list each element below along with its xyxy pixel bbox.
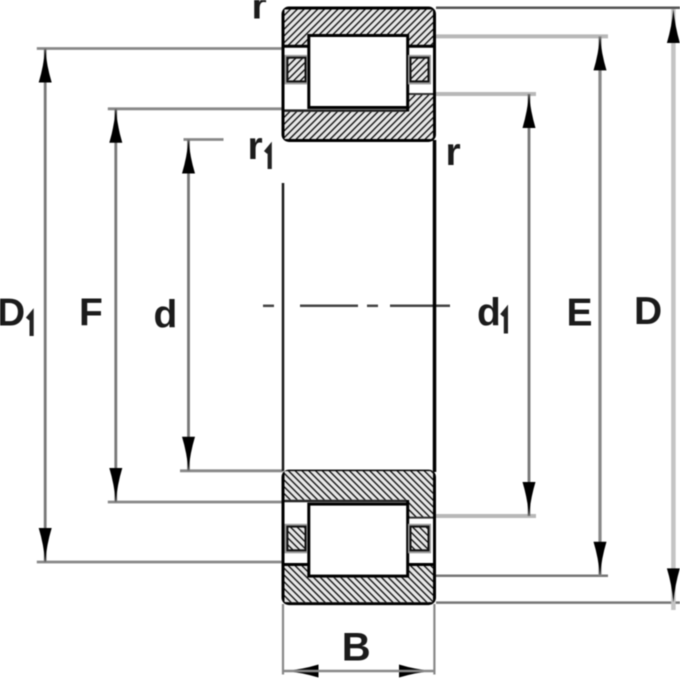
svg-text:E: E: [567, 292, 593, 335]
svg-text:r: r: [446, 131, 461, 174]
svg-text:B: B: [342, 626, 371, 670]
svg-text:d: d: [154, 294, 178, 337]
svg-text:D: D: [634, 290, 662, 333]
svg-text:d: d: [477, 292, 501, 335]
svg-text:r: r: [248, 125, 263, 168]
svg-text:D: D: [0, 292, 25, 335]
svg-text:F: F: [79, 292, 103, 335]
svg-text:r: r: [252, 0, 267, 28]
